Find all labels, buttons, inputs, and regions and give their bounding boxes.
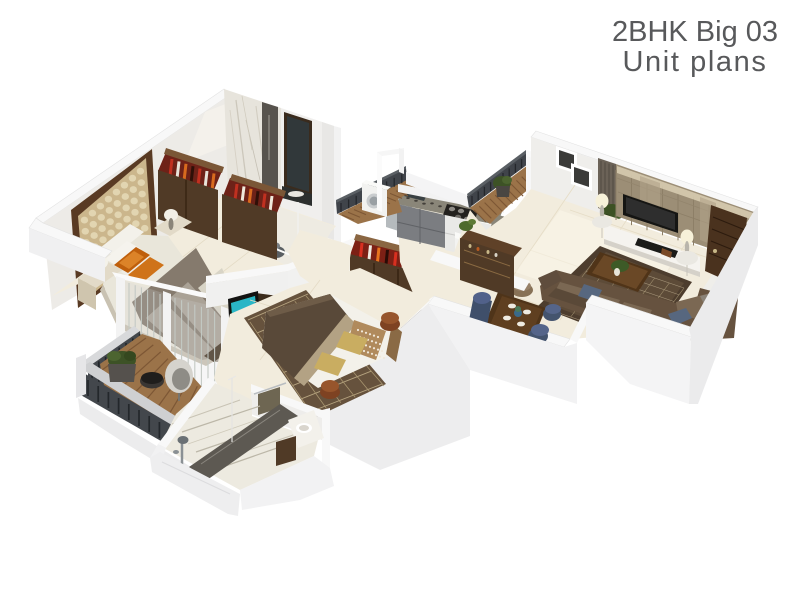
svg-text:Unit plans: Unit plans [623,46,768,78]
svg-text:2BHK Big 03: 2BHK Big 03 [612,16,778,48]
